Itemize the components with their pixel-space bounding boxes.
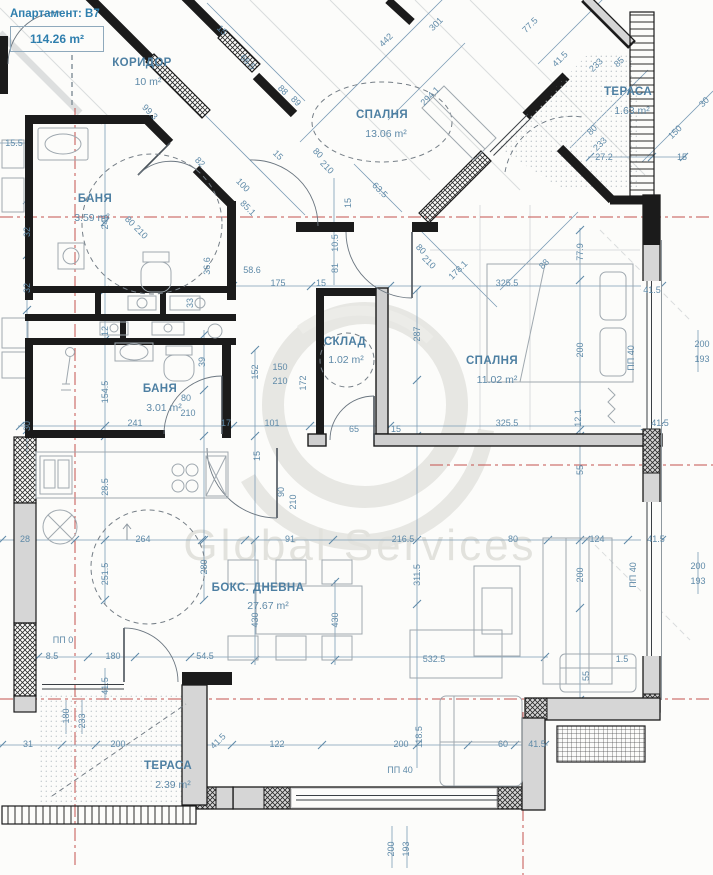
- apartment-total-area: 114.26 m²: [10, 26, 104, 52]
- watermark-logo: [248, 311, 486, 543]
- apartment-title: Апартамент: B7: [10, 8, 100, 20]
- watermark-text: Global Services: [183, 521, 536, 570]
- walls: [0, 0, 662, 824]
- floor-plan-page: Global Services: [0, 0, 713, 875]
- floor-plan-drawing: Global Services: [0, 0, 713, 875]
